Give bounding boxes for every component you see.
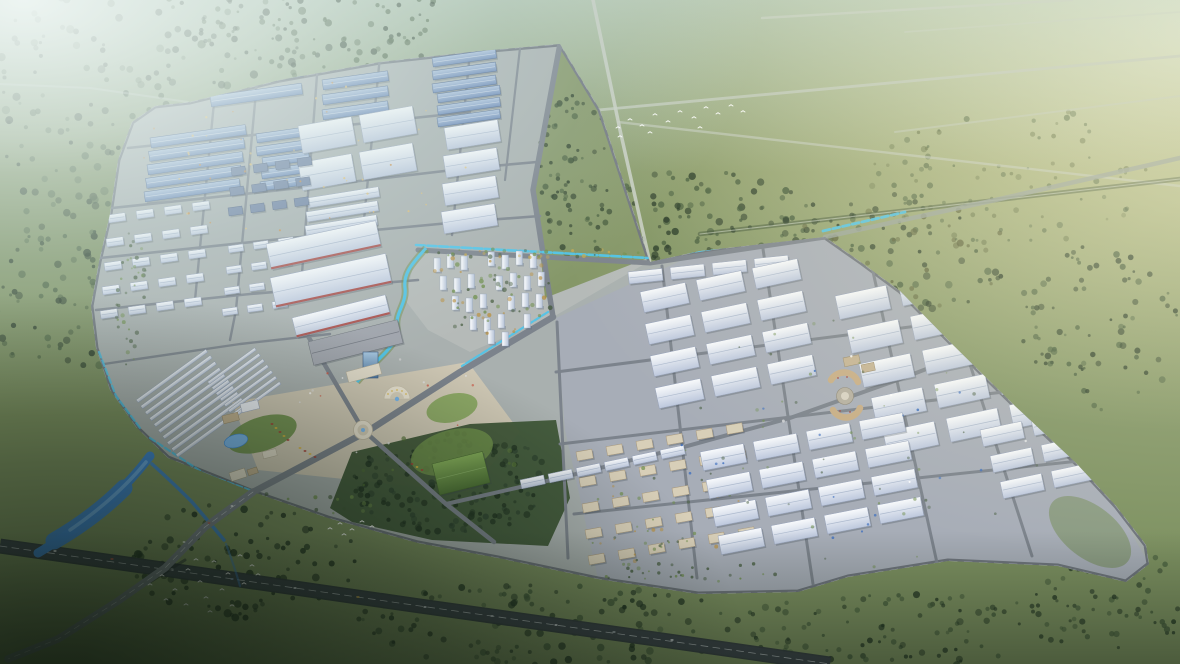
aerial-masterplan-render — [0, 0, 1180, 664]
industrial-park-aerial-scene — [0, 0, 1180, 664]
scene-root — [0, 0, 1180, 664]
bottom-edge-shade — [0, 0, 1180, 664]
